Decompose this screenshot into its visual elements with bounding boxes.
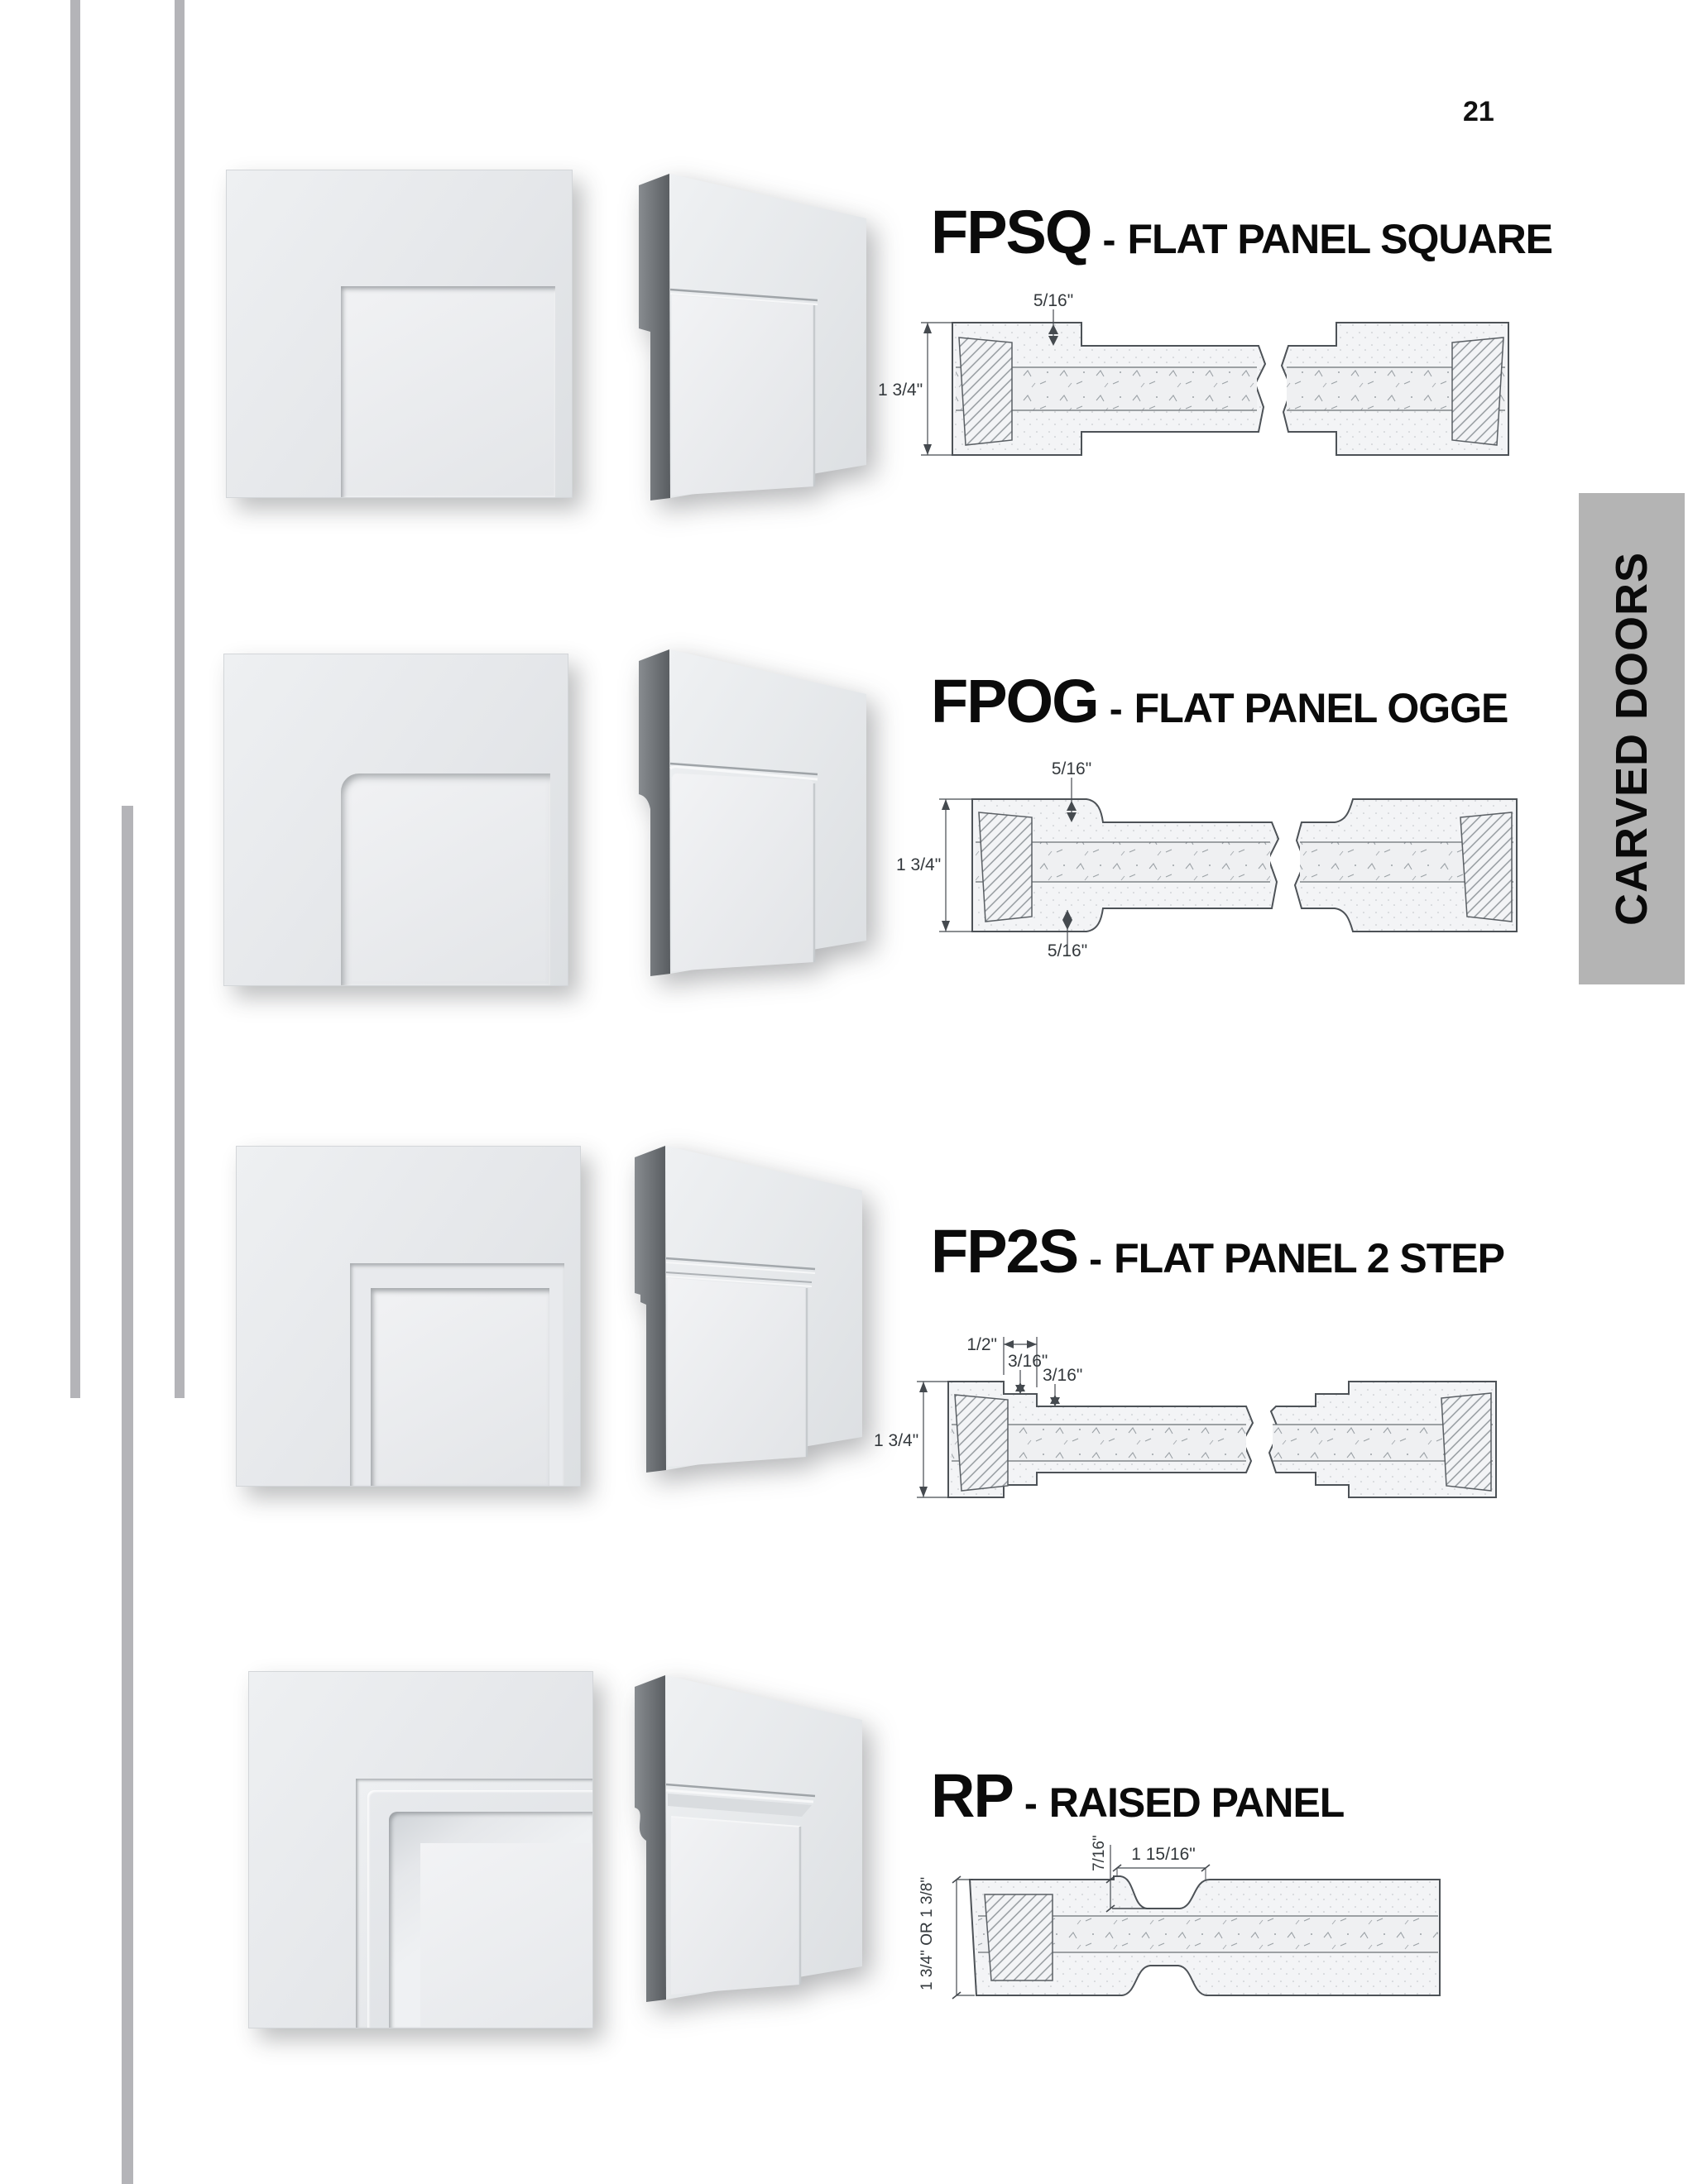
rp-cove-depth-label: 7/16" bbox=[1091, 1835, 1108, 1871]
fp2s-title-sep: - bbox=[1089, 1237, 1102, 1282]
fp2s-front-panel bbox=[371, 1288, 549, 1486]
fpsq-code: FPSQ bbox=[931, 197, 1091, 267]
fpsq-front-panel bbox=[341, 286, 555, 497]
rp-side-view bbox=[616, 1667, 865, 2031]
fp2s-offset-label: 1/2" bbox=[966, 1335, 997, 1354]
fpsq-side-panel bbox=[672, 295, 814, 496]
fpog-side-view bbox=[621, 641, 869, 1005]
rp-front-raised-field bbox=[420, 1843, 592, 2028]
carved-doors-tab-label: CARVED DOORS bbox=[1579, 493, 1685, 984]
catalog-page: 21 CARVED DOORS FPSQ - FLAT PANEL SQUARE bbox=[0, 0, 1688, 2184]
rp-stile-hatch bbox=[985, 1894, 1053, 1980]
fpsq-title-sep: - bbox=[1102, 218, 1115, 263]
rp-cross-section: 1 3/4" OR 1 3/8" 7/16" 1 15/16" bbox=[918, 1828, 1448, 2019]
fpog-front-view bbox=[223, 654, 568, 986]
fp2s-front-view bbox=[236, 1146, 581, 1487]
fpog-stile-hatch-right bbox=[1460, 812, 1512, 922]
rp-front-molding bbox=[356, 1779, 592, 2028]
fpsq-cross-section: 1 3/4" 5/16" bbox=[873, 291, 1535, 473]
rp-front-view bbox=[248, 1671, 593, 2028]
fp2s-name: FLAT PANEL 2 STEP bbox=[1114, 1234, 1504, 1282]
rp-code: RP bbox=[931, 1760, 1013, 1831]
rp-front-molding-band bbox=[367, 1790, 592, 2028]
fpsq-stile-hatch-left bbox=[959, 338, 1012, 445]
fp2s-step2-label: 3/16" bbox=[1043, 1366, 1082, 1385]
rp-side-panel bbox=[671, 1817, 800, 1995]
accent-line-left-1 bbox=[70, 0, 80, 1398]
fpog-side-panel bbox=[672, 773, 814, 971]
fpsq-step-label: 5/16" bbox=[1033, 291, 1073, 310]
fpog-code: FPOG bbox=[931, 666, 1098, 736]
accent-line-left-3 bbox=[122, 806, 133, 2184]
fp2s-side-edge bbox=[635, 1146, 666, 1473]
fpog-title: FPOG - FLAT PANEL OGGE bbox=[931, 666, 1508, 736]
accent-line-left-2 bbox=[175, 0, 185, 1398]
fpsq-title: FPSQ - FLAT PANEL SQUARE bbox=[931, 197, 1552, 267]
fpog-name: FLAT PANEL OGGE bbox=[1134, 684, 1508, 732]
fpsq-name: FLAT PANEL SQUARE bbox=[1127, 215, 1552, 263]
fpog-top-step-label: 5/16" bbox=[1052, 759, 1091, 778]
rp-name: RAISED PANEL bbox=[1049, 1779, 1345, 1827]
fp2s-cross-section: 1 3/4" 1/2" 3/16" 3/16" bbox=[869, 1299, 1539, 1506]
fpog-title-sep: - bbox=[1110, 687, 1123, 732]
fp2s-side-view bbox=[616, 1137, 865, 1501]
fp2s-code: FP2S bbox=[931, 1216, 1077, 1286]
fpsq-front-view bbox=[226, 170, 573, 498]
fp2s-front-step bbox=[350, 1263, 564, 1486]
carved-doors-side-tab: CARVED DOORS bbox=[1579, 493, 1685, 984]
rp-side-edge bbox=[635, 1675, 666, 2002]
fpsq-side-edge bbox=[639, 174, 670, 500]
fp2s-side-panel bbox=[668, 1278, 807, 1467]
fpog-thickness-label: 1 3/4" bbox=[896, 855, 941, 874]
fpsq-side-view bbox=[621, 165, 869, 529]
fpog-side-edge bbox=[639, 649, 670, 976]
fpog-front-panel bbox=[341, 773, 550, 985]
rp-title: RP - RAISED PANEL bbox=[931, 1760, 1344, 1831]
rp-rise-width-label: 1 15/16" bbox=[1131, 1845, 1196, 1864]
page-number: 21 bbox=[1463, 96, 1494, 128]
rp-front-bevel bbox=[389, 1812, 592, 2028]
fpog-stile-hatch-left bbox=[979, 812, 1032, 922]
fp2s-stile-hatch-right bbox=[1441, 1393, 1491, 1491]
fp2s-title: FP2S - FLAT PANEL 2 STEP bbox=[931, 1216, 1504, 1286]
fp2s-thickness-label: 1 3/4" bbox=[874, 1431, 918, 1450]
fpsq-stile-hatch-right bbox=[1452, 338, 1503, 445]
fp2s-stile-hatch-left bbox=[955, 1395, 1008, 1491]
rp-thickness-label: 1 3/4" OR 1 3/8" bbox=[918, 1877, 936, 1990]
fpog-cross-section: 1 3/4" 5/16" 5/16" bbox=[890, 759, 1543, 958]
rp-title-sep: - bbox=[1024, 1781, 1038, 1827]
fpsq-thickness-label: 1 3/4" bbox=[878, 381, 923, 400]
